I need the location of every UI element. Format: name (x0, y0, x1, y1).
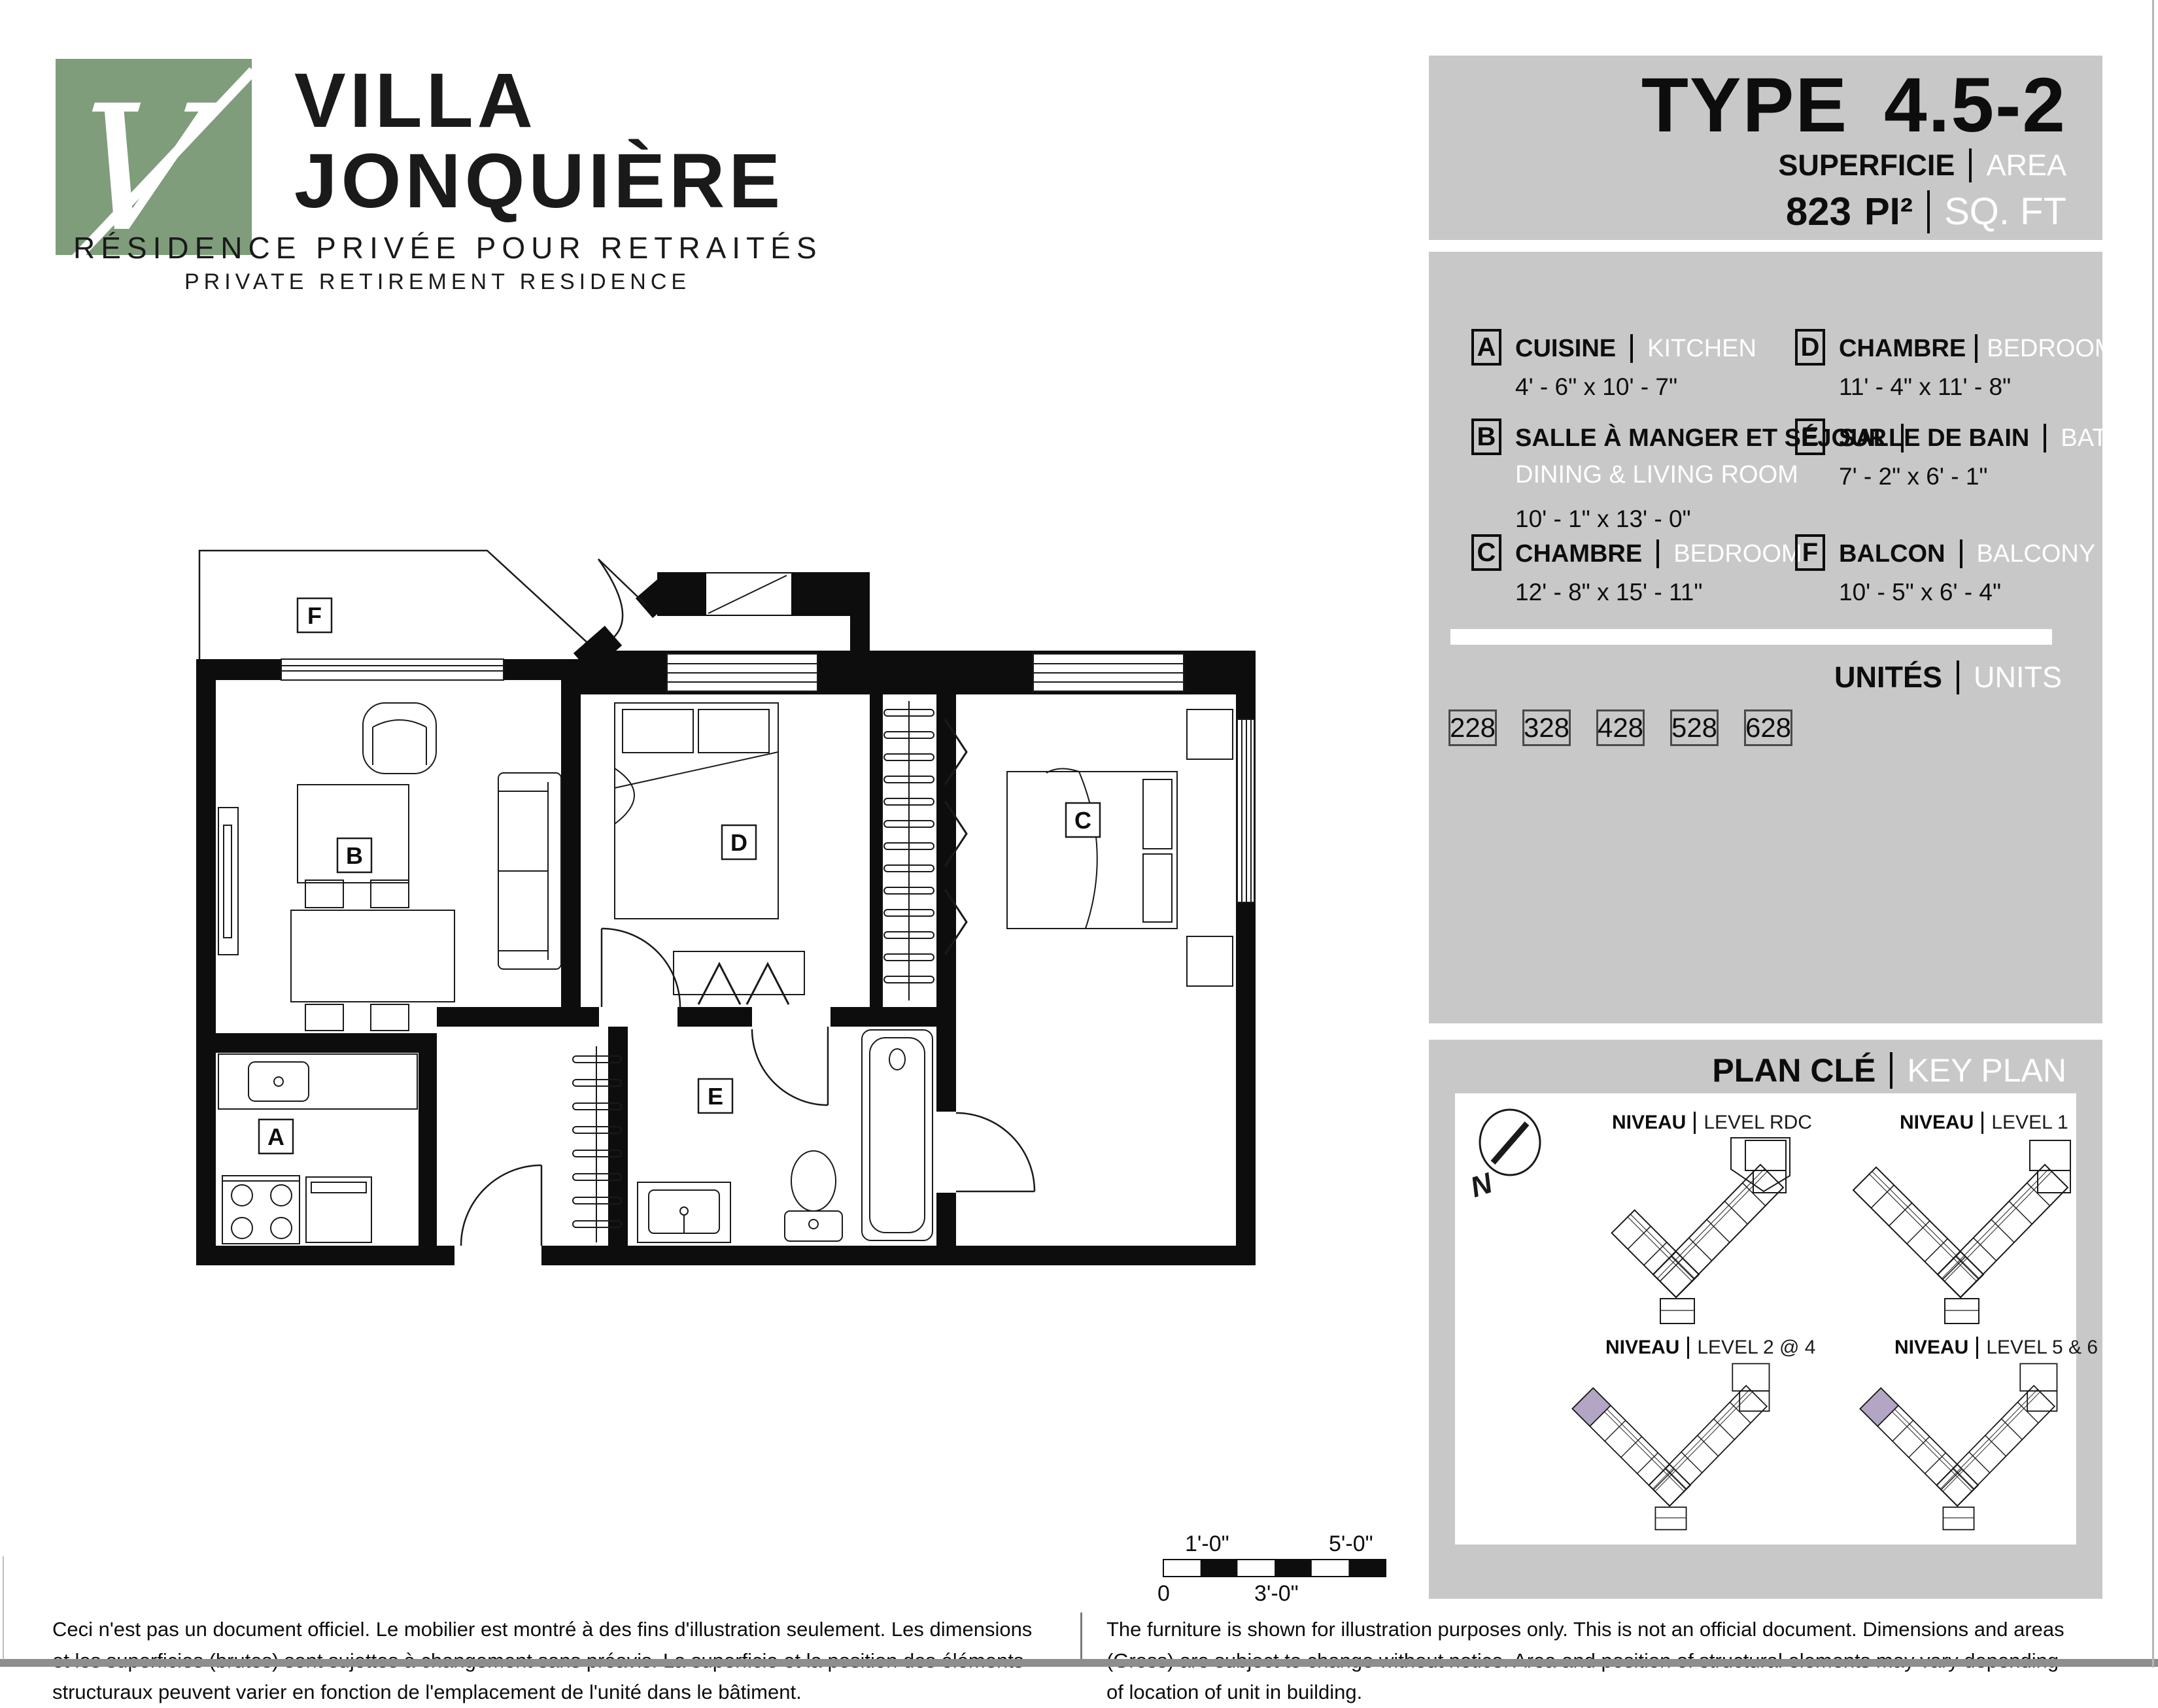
divider (1981, 1112, 1983, 1134)
balcony-outline (199, 551, 608, 662)
legend-letter-E: E (1795, 418, 1825, 455)
unites-label: UNITÉS (1834, 660, 1942, 694)
level-label-1: NIVEAU LEVEL 1 (1900, 1112, 2068, 1134)
dining-table-set (291, 880, 454, 1031)
bifold-doors (698, 719, 967, 1004)
room-f-dims: 10' - 5" x 6' - 4" (1839, 579, 2001, 606)
room-b-fr: SALLE À MANGER ET SÉJOUR (1515, 424, 1887, 453)
unit-badge-328: 328 (1522, 709, 1571, 746)
room-e-en: BATHROOM (2061, 424, 2158, 453)
legend-room-C: CHAMBRE BEDROOM (1515, 539, 1802, 568)
unit-badge-528: 528 (1670, 709, 1719, 746)
divider (1976, 1337, 1978, 1359)
legend-panel: A CUISINE KITCHEN 4' - 6" x 10' - 7" D C… (1429, 252, 2102, 1023)
logo-tagline-en: PRIVATE RETIREMENT RESIDENCE (184, 269, 691, 295)
niveau-label: NIVEAU (1894, 1337, 1968, 1359)
scale-bar: 1'-0" 5'-0" 0 3'-0" (1112, 1530, 1439, 1609)
plan-label-D: D (730, 829, 747, 856)
room-d-fr: CHAMBRE (1839, 335, 1966, 363)
logo-name-line1: VILLA (294, 62, 537, 139)
room-f-en: BALCONY (1977, 540, 2096, 568)
legend-room-D: CHAMBRE BEDROOM (1839, 334, 2115, 363)
level-rdc-label: LEVEL RDC (1704, 1112, 1812, 1134)
window-right-wall (1237, 719, 1254, 902)
closet-hangers-d (884, 701, 934, 1000)
room-f-fr: BALCON (1839, 540, 1945, 568)
bathtub (862, 1030, 933, 1240)
compass-n-label: N (1467, 1167, 1497, 1204)
plan-label-C: C (1074, 807, 1091, 834)
niveau-label: NIVEAU (1900, 1112, 1974, 1134)
type-title: TYPE4.5-2 (1641, 61, 2066, 150)
legend-room-A: CUISINE KITCHEN (1515, 334, 1756, 363)
sofa (498, 773, 561, 969)
level-2-4-label: LEVEL 2 @ 4 (1697, 1337, 1815, 1359)
floor-plan: F B A D C E (183, 536, 1282, 1282)
balcony-door (598, 559, 646, 638)
divider (2044, 424, 2046, 453)
area-unit-fr: PI² (1864, 190, 1913, 233)
divider (1890, 1052, 1893, 1089)
bathroom-vanity (638, 1182, 730, 1242)
divider (1969, 148, 1972, 182)
room-a-dims: 4' - 6" x 10' - 7" (1515, 373, 1677, 401)
toilet (785, 1151, 842, 1241)
legend-room-E: SALLE DE BAIN BATHROOM (1839, 424, 2158, 453)
logo-name-line2: JONQUIÈRE (294, 143, 784, 220)
level-label-rdc: NIVEAU LEVEL RDC (1612, 1112, 1812, 1134)
area-unit-en: SQ. FT (1944, 190, 2066, 233)
footer-divider (1080, 1613, 1082, 1660)
room-b-dims: 10' - 1" x 13' - 0" (1515, 505, 1691, 533)
diagonal-wall (644, 587, 668, 608)
room-e-fr: SALLE DE BAIN (1839, 424, 2029, 453)
area-value-row: 823 PI² SQ. FT (1786, 189, 2066, 234)
page-bottom-bar (0, 1659, 2158, 1667)
legend-letter-F: F (1795, 534, 1825, 571)
divider (1927, 190, 1930, 233)
legend-letter-B: B (1471, 418, 1501, 455)
bedroom-d-door (602, 929, 680, 1007)
keyplan-title: PLAN CLÉ KEY PLAN (1712, 1051, 2066, 1089)
window-living (281, 659, 504, 680)
level-label-5-6: NIVEAU LEVEL 5 & 6 (1894, 1337, 2098, 1359)
north-compass-icon: N (1467, 1106, 1552, 1204)
area-label-row: SUPERFICIE AREA (1778, 148, 2066, 182)
type-label: TYPE (1641, 62, 1848, 148)
plan-label-A: A (267, 1123, 284, 1150)
divider (1656, 539, 1659, 568)
stove (222, 1176, 300, 1244)
plan-label-E: E (708, 1083, 723, 1110)
tv-console (218, 808, 238, 955)
area-value: 823 (1786, 189, 1851, 234)
window-bedroom-d (667, 654, 817, 691)
type-header-panel: TYPE4.5-2 SUPERFICIE AREA 823 PI² SQ. FT (1429, 56, 2102, 240)
bed-d (615, 703, 778, 919)
page-left-border (3, 1556, 4, 1660)
scale-label-1ft: 1'-0" (1185, 1531, 1229, 1557)
room-b-en: DINING & LIVING ROOM (1515, 461, 1798, 489)
unit-badge-628: 628 (1744, 709, 1792, 746)
dresser-d (674, 951, 804, 995)
plan-label-F: F (307, 602, 322, 629)
units-divider-bar (1450, 629, 2052, 645)
divider (1630, 334, 1633, 363)
divider (1687, 1337, 1689, 1359)
logo-tagline-fr: RÉSIDENCE PRIVÉE POUR RETRAITÉS (73, 230, 823, 265)
armchair (363, 703, 436, 774)
level-5-6-label: LEVEL 5 & 6 (1986, 1337, 2098, 1359)
page-right-border (2152, 0, 2154, 1667)
dishwasher (306, 1177, 371, 1242)
scale-bar-graphic (1163, 1559, 1390, 1579)
bedroom-c-door (956, 1113, 1035, 1191)
keyplan-level-2-4 (1533, 1360, 1808, 1538)
niveau-label: NIVEAU (1612, 1112, 1686, 1134)
level-1-label: LEVEL 1 (1991, 1112, 2068, 1134)
top-entry-opening (706, 573, 791, 615)
room-a-fr: CUISINE (1515, 335, 1616, 363)
units-title: UNITÉS UNITS (1834, 660, 2062, 694)
keyplan-canvas: N NIVEAU LEVEL RDC NIVEAU LEVEL 1 NIVEAU… (1455, 1093, 2076, 1545)
niveau-label: NIVEAU (1605, 1337, 1679, 1359)
unit-badge-428: 428 (1596, 709, 1645, 746)
window-bedroom-c (1033, 654, 1184, 691)
area-label: AREA (1986, 148, 2066, 182)
divider (1975, 334, 1978, 363)
room-d-dims: 11' - 4" x 11' - 8" (1839, 373, 2011, 401)
plan-label-B: B (346, 842, 363, 869)
keyplan-level-1 (1824, 1136, 2099, 1333)
units-label: UNITS (1974, 660, 2062, 694)
divider (1957, 660, 1959, 694)
type-value: 4.5-2 (1884, 62, 2066, 148)
scale-label-5ft: 5'-0" (1329, 1531, 1373, 1557)
plan-cle-label: PLAN CLÉ (1712, 1051, 1875, 1089)
keyplan-level-rdc (1540, 1136, 1815, 1333)
unit-badge-228: 228 (1448, 709, 1497, 746)
divider (1960, 539, 1962, 568)
room-c-dims: 12' - 8" x 15' - 11" (1515, 579, 1703, 606)
keyplan-level-5-6 (1821, 1360, 2096, 1538)
room-d-en: BEDROOM (1987, 335, 2115, 363)
unit-entry-door (461, 1165, 541, 1246)
keyplan-panel: PLAN CLÉ KEY PLAN N NIVEAU LEVEL RDC NIV… (1429, 1040, 2102, 1599)
scale-label-0: 0 (1157, 1581, 1170, 1607)
kitchen-counter (218, 1054, 417, 1109)
room-a-en: KITCHEN (1647, 335, 1756, 363)
bathroom-door (752, 1027, 828, 1105)
level-label-2-4: NIVEAU LEVEL 2 @ 4 (1605, 1337, 1815, 1359)
superficie-label: SUPERFICIE (1778, 148, 1955, 182)
legend-letter-D: D (1795, 329, 1825, 366)
scale-label-3ft: 3'-0" (1254, 1581, 1299, 1607)
nightstands-c (1187, 709, 1233, 986)
bed-c (1007, 768, 1177, 929)
room-e-dims: 7' - 2" x 6' - 1" (1839, 463, 1988, 490)
key-plan-label: KEY PLAN (1907, 1051, 2066, 1089)
room-c-en: BEDROOM (1673, 540, 1802, 568)
room-c-fr: CHAMBRE (1515, 540, 1642, 568)
divider (1694, 1112, 1696, 1134)
legend-room-F: BALCON BALCONY (1839, 539, 2095, 568)
legend-letter-C: C (1471, 534, 1501, 571)
legend-letter-A: A (1471, 329, 1501, 366)
